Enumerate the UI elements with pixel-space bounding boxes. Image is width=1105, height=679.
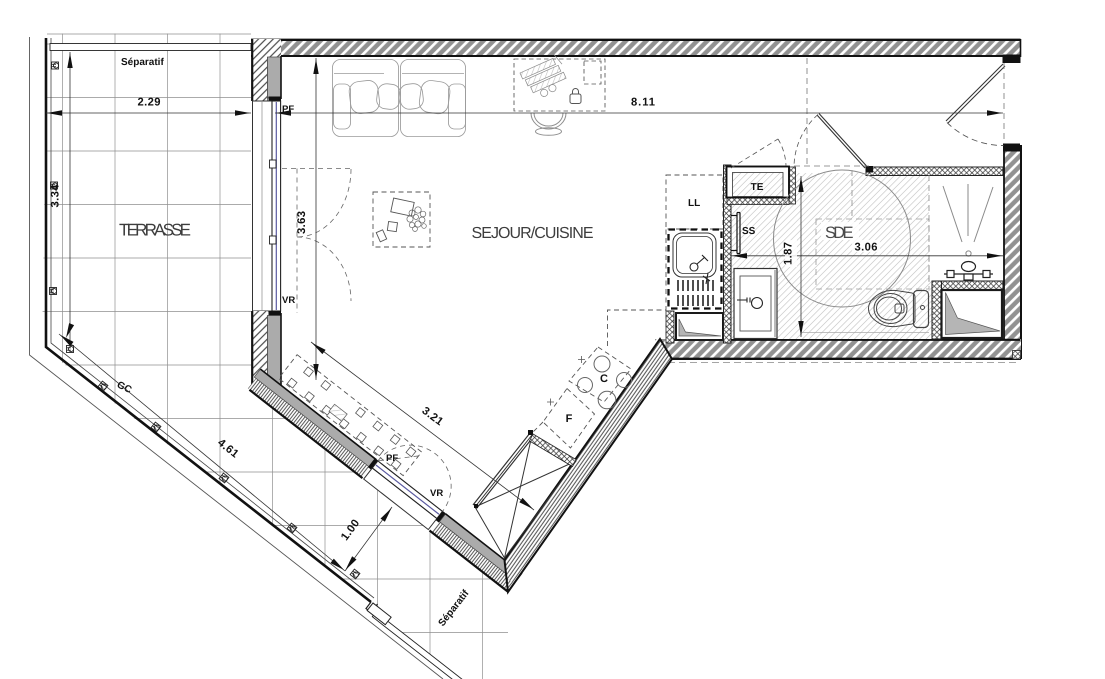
- svg-text:3.34: 3.34: [50, 184, 62, 208]
- svg-text:3.63: 3.63: [296, 211, 308, 234]
- svg-text:SS: SS: [742, 226, 756, 237]
- svg-text:SEJOUR/CUISINE: SEJOUR/CUISINE: [472, 225, 595, 242]
- svg-text:3.06: 3.06: [855, 242, 878, 254]
- svg-text:PF: PF: [282, 104, 294, 115]
- svg-text:TERRASSE: TERRASSE: [119, 221, 193, 240]
- svg-text:VR: VR: [430, 488, 443, 499]
- svg-text:VR: VR: [282, 295, 295, 306]
- svg-text:PF: PF: [386, 453, 398, 464]
- svg-text:8.11: 8.11: [631, 97, 655, 109]
- svg-text:F: F: [566, 413, 573, 425]
- svg-text:1.87: 1.87: [783, 242, 795, 265]
- svg-text:C: C: [600, 373, 608, 385]
- svg-text:SDE: SDE: [825, 224, 855, 242]
- svg-text:Séparatif: Séparatif: [121, 57, 164, 68]
- svg-text:2.29: 2.29: [138, 97, 161, 109]
- svg-text:TE: TE: [751, 182, 764, 193]
- svg-text:LL: LL: [688, 198, 700, 209]
